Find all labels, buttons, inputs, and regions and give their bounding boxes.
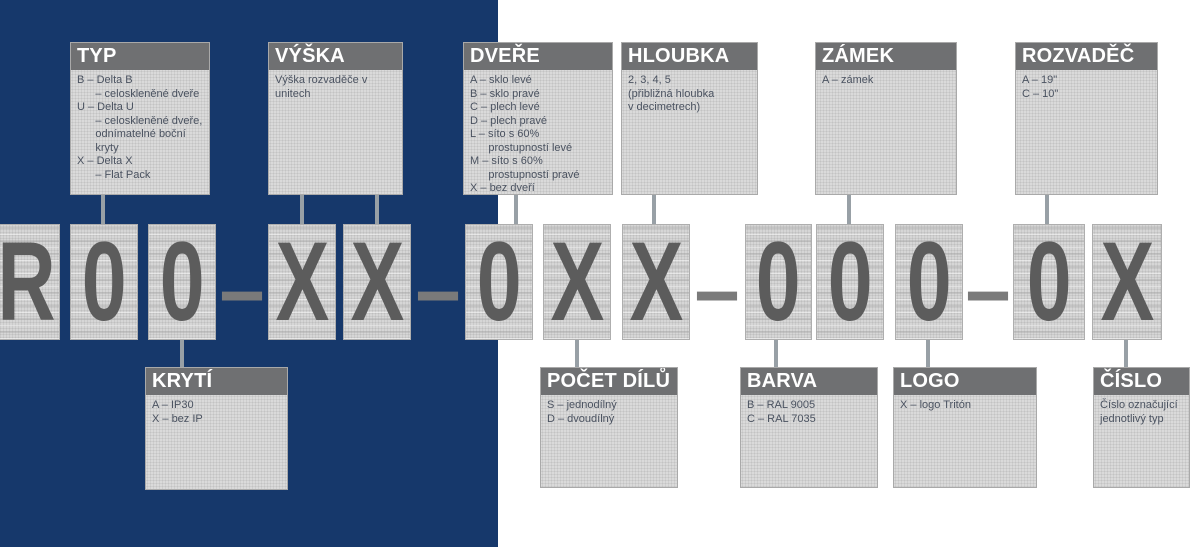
legend-title-rozvadec: ROZVADĚČ xyxy=(1016,43,1157,70)
legend-box-zamek: ZÁMEK A – zámek xyxy=(815,42,957,195)
code-cell-6: 0 xyxy=(465,224,533,340)
legend-body-barva: B – RAL 9005 C – RAL 7035 xyxy=(741,395,877,430)
legend-title-dvere: DVEŘE xyxy=(464,43,612,70)
separator-dash: – xyxy=(965,245,1010,335)
code-cell-12: 0 xyxy=(1013,224,1085,340)
code-cell-10: 0 xyxy=(816,224,884,340)
code-separator-3: – xyxy=(696,224,738,340)
legend-body-cislo: Číslo označující jednotlivý typ xyxy=(1094,395,1189,430)
legend-title-logo: LOGO xyxy=(894,368,1036,395)
legend-title-barva: BARVA xyxy=(741,368,877,395)
code-cell-8: X xyxy=(622,224,690,340)
code-char: 0 xyxy=(160,226,205,338)
code-char: 0 xyxy=(828,226,873,338)
code-char: R xyxy=(0,226,55,338)
product-code-diagram: TYP B – Delta B – celoskleněné dveře U –… xyxy=(0,0,1195,547)
legend-title-typ: TYP xyxy=(71,43,209,70)
legend-title-zamek: ZÁMEK xyxy=(816,43,956,70)
legend-body-kryti: A – IP30 X – bez IP xyxy=(146,395,287,430)
legend-box-barva: BARVA B – RAL 9005 C – RAL 7035 xyxy=(740,367,878,488)
code-cell-3: 0 xyxy=(148,224,216,340)
legend-body-zamek: A – zámek xyxy=(816,70,956,92)
code-cell-11: 0 xyxy=(895,224,963,340)
legend-box-dvere: DVEŘE A – sklo levé B – sklo pravé C – p… xyxy=(463,42,613,195)
legend-title-kryti: KRYTÍ xyxy=(146,368,287,395)
legend-title-hloubka: HLOUBKA xyxy=(622,43,757,70)
legend-body-pocet-dilu: S – jednodílný D – dvoudílný xyxy=(541,395,677,430)
separator-dash: – xyxy=(219,245,264,335)
code-char: 0 xyxy=(82,226,127,338)
code-cell-4: X xyxy=(268,224,336,340)
code-cell-13: X xyxy=(1092,224,1162,340)
legend-box-rozvadec: ROZVADĚČ A – 19" C – 10" xyxy=(1015,42,1158,195)
legend-box-pocet-dilu: POČET DÍLŮ S – jednodílný D – dvoudílný xyxy=(540,367,678,488)
code-char: X xyxy=(629,226,683,338)
code-char: 0 xyxy=(1027,226,1072,338)
legend-body-vyska: Výška rozvaděče v unitech xyxy=(269,70,402,105)
legend-box-logo: LOGO X – logo Tritón xyxy=(893,367,1037,488)
legend-body-dvere: A – sklo levé B – sklo pravé C – plech l… xyxy=(464,70,612,200)
legend-body-rozvadec: A – 19" C – 10" xyxy=(1016,70,1157,105)
code-cell-9: 0 xyxy=(745,224,812,340)
legend-body-typ: B – Delta B – celoskleněné dveře U – Del… xyxy=(71,70,209,186)
code-char: X xyxy=(275,226,329,338)
separator-dash: – xyxy=(415,245,460,335)
legend-box-hloubka: HLOUBKA 2, 3, 4, 5 (přibližná hloubka v … xyxy=(621,42,758,195)
code-cell-5: X xyxy=(343,224,411,340)
legend-body-hloubka: 2, 3, 4, 5 (přibližná hloubka v decimetr… xyxy=(622,70,757,119)
code-cell-1: R xyxy=(0,224,60,340)
legend-body-logo: X – logo Tritón xyxy=(894,395,1036,417)
legend-title-pocet-dilu: POČET DÍLŮ xyxy=(541,368,677,395)
legend-box-cislo: ČÍSLO Číslo označující jednotlivý typ xyxy=(1093,367,1190,488)
code-cell-2: 0 xyxy=(70,224,138,340)
code-char: X xyxy=(550,226,604,338)
separator-dash: – xyxy=(694,245,739,335)
code-cell-7: X xyxy=(543,224,611,340)
code-separator-2: – xyxy=(417,224,459,340)
code-char: 0 xyxy=(756,226,801,338)
code-char: 0 xyxy=(907,226,952,338)
legend-box-kryti: KRYTÍ A – IP30 X – bez IP xyxy=(145,367,288,490)
legend-box-vyska: VÝŠKA Výška rozvaděče v unitech xyxy=(268,42,403,195)
legend-title-vyska: VÝŠKA xyxy=(269,43,402,70)
legend-title-cislo: ČÍSLO xyxy=(1094,368,1189,395)
code-char: 0 xyxy=(477,226,522,338)
code-separator-1: – xyxy=(221,224,263,340)
code-char: X xyxy=(1100,226,1154,338)
code-separator-4: – xyxy=(967,224,1009,340)
code-char: X xyxy=(350,226,404,338)
legend-box-typ: TYP B – Delta B – celoskleněné dveře U –… xyxy=(70,42,210,195)
